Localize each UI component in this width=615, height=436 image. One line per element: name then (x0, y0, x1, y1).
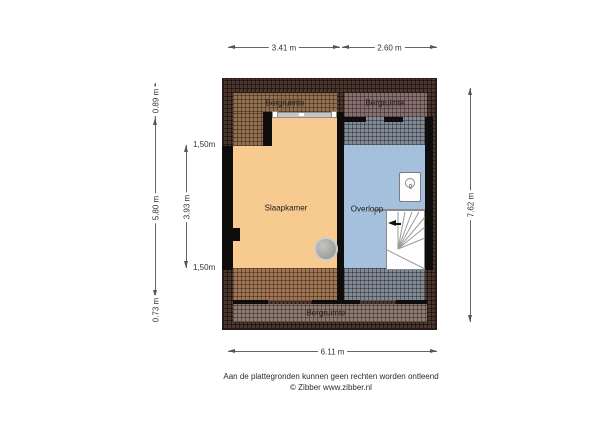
dim-left-middle: 5.80 m (151, 118, 160, 297)
label-bergruimte-top-right: Bergruimte (365, 99, 404, 108)
staircase-icon (386, 210, 425, 270)
boiler-unit-icon (399, 172, 421, 202)
dim-top-right: 2.60 m (342, 43, 437, 52)
footer-credit: © Zibber www.zibber.nl (161, 382, 501, 393)
wall-right (425, 117, 433, 270)
footer-disclaimer: Aan de plattegronden kunnen geen rechten… (161, 371, 501, 382)
partition-mid-tick (299, 113, 304, 116)
wall-bergruimte-right-a (344, 117, 366, 122)
wall-bergruimte-left-divider (263, 112, 272, 146)
label-overloop: Overloop (351, 205, 383, 214)
zone-low-headroom-slaapkamer-bottom (233, 268, 337, 301)
dim-left-bottom: 0.73 m (151, 297, 160, 322)
floorplan-canvas: Bergruimte Bergruimte Slaapkamer Overloo… (0, 0, 615, 436)
dim-inner-bottom-label: 1,50m (193, 263, 215, 272)
dim-bottom-width: 6.11 m (228, 347, 437, 356)
partition-endcap-right (331, 111, 337, 118)
dim-inner-height: 3.93 m (182, 145, 191, 268)
wall-bottom-b (312, 300, 360, 304)
wall-bottom-a (233, 300, 268, 304)
dim-inner-top-label: 1,50m (193, 140, 215, 149)
label-bergruimte-bottom: Bergruimte (306, 309, 345, 318)
dim-left-top: 0.89 m (151, 83, 160, 118)
wall-bergruimte-right-b (384, 117, 403, 122)
wall-middle (337, 112, 344, 304)
zone-low-headroom-overloop-bottom (344, 268, 425, 301)
room-bergruimte-top-left-extension (233, 112, 263, 146)
dim-top-left: 3.41 m (228, 43, 340, 52)
partition-endcap-left (272, 111, 278, 118)
flue-duct-icon (314, 237, 338, 261)
wall-left-pier (233, 228, 240, 241)
wall-bottom-c (396, 300, 427, 304)
dim-right-height: 7.62 m (466, 88, 475, 322)
footer: Aan de plattegronden kunnen geen rechten… (161, 371, 501, 393)
partition-slaapkamer-top (272, 112, 337, 118)
wall-left (222, 146, 233, 270)
label-bergruimte-top-left: Bergruimte (265, 99, 304, 108)
label-slaapkamer: Slaapkamer (265, 204, 308, 213)
